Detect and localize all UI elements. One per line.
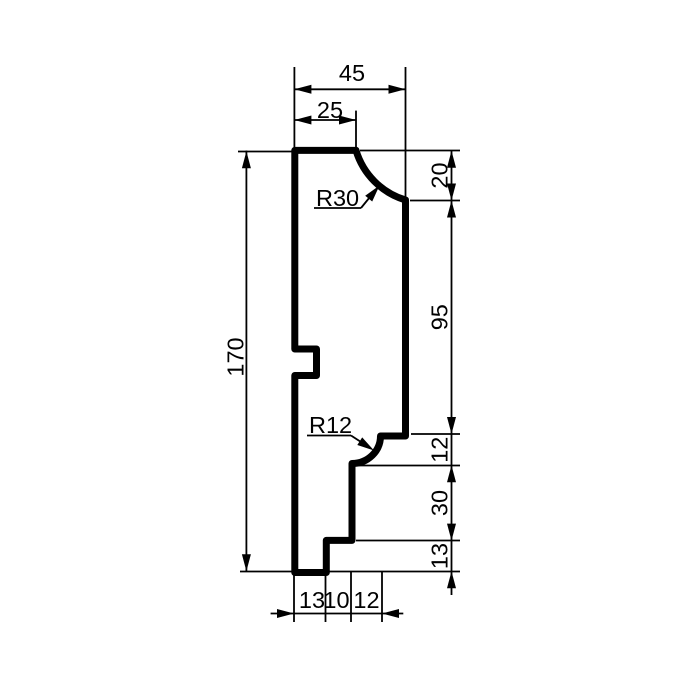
svg-text:30: 30: [427, 490, 453, 516]
svg-text:13: 13: [427, 543, 453, 569]
svg-text:12: 12: [353, 587, 379, 613]
svg-text:95: 95: [427, 304, 453, 330]
svg-text:R30: R30: [316, 185, 359, 211]
svg-text:12: 12: [427, 437, 453, 463]
svg-text:170: 170: [223, 337, 249, 376]
svg-text:R12: R12: [309, 412, 352, 438]
svg-text:10: 10: [323, 587, 349, 613]
svg-text:13: 13: [299, 587, 325, 613]
svg-text:25: 25: [317, 97, 343, 123]
svg-text:20: 20: [427, 162, 453, 188]
svg-text:45: 45: [339, 60, 365, 86]
